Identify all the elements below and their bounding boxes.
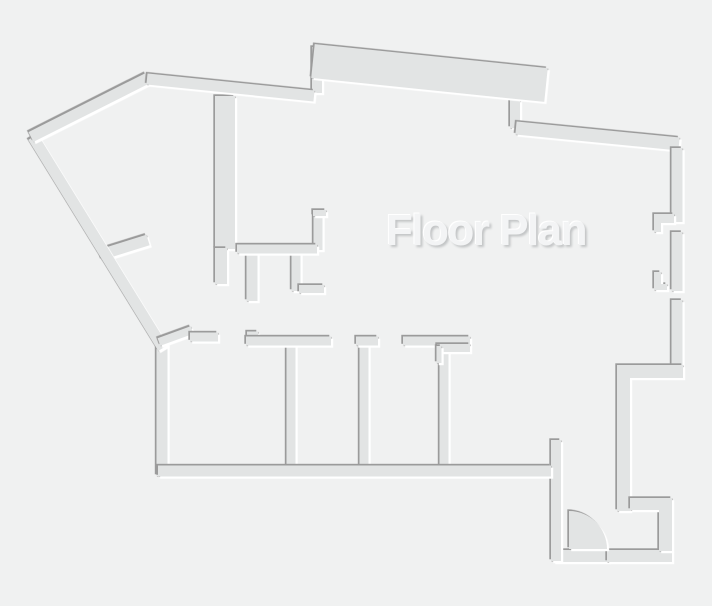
floor-plan-stage: Floor Plan (0, 0, 712, 606)
floor-plan-canvas (0, 0, 712, 606)
plan-background (0, 0, 712, 606)
wall-bay-slab (313, 61, 546, 85)
floor-plan-title: Floor Plan (386, 209, 586, 253)
